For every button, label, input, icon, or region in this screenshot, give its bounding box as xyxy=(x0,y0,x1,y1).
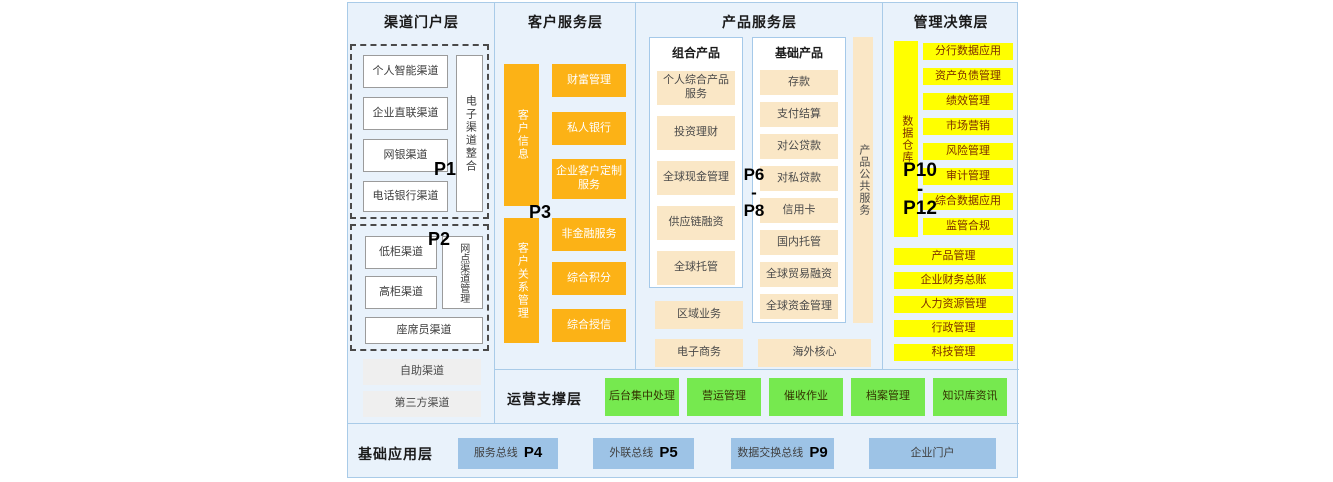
diagram-node: 分行数据应用 xyxy=(923,43,1013,60)
diagram-node: 供应链融资 xyxy=(657,206,735,240)
diagram-node: 催收作业 xyxy=(769,378,843,416)
diagram-node: 后台集中处理 xyxy=(605,378,679,416)
diagram-node: 座席员渠道 xyxy=(365,317,483,344)
diagram-node: 国内托管 xyxy=(760,230,838,255)
channel-layer-column: 渠道门户层 个人智能渠道 企业直联渠道 网银渠道 电话银行渠道 电子渠道整合 P… xyxy=(348,3,495,423)
diagram-node: 信用卡 xyxy=(760,198,838,223)
architecture-diagram: 渠道门户层 个人智能渠道 企业直联渠道 网银渠道 电话银行渠道 电子渠道整合 P… xyxy=(0,0,1333,482)
diagram-node: 存款 xyxy=(760,70,838,95)
base-products-title: 基础产品 xyxy=(753,44,845,61)
customer-layer-title: 客户服务层 xyxy=(495,12,636,32)
operations-layer-row: 运营支撑层 后台集中处理 营运管理 催收作业 档案管理 知识库资讯 xyxy=(495,369,1019,423)
diagram-node: 全球托管 xyxy=(657,251,735,285)
enterprise-portal-node: 企业门户 xyxy=(869,438,996,469)
management-layer-column: 管理决策层 数据仓库 P10 - P12 分行数据应用 资产负债管理 绩效管理 … xyxy=(883,3,1019,369)
diagram-node: 全球贸易融资 xyxy=(760,262,838,287)
management-layer-title: 管理决策层 xyxy=(883,12,1019,32)
dash-text: - xyxy=(896,180,944,199)
diagram-node: 第三方渠道 xyxy=(363,391,481,417)
p6-p8-label: P6 - P8 xyxy=(740,166,768,220)
diagram-node: 行政管理 xyxy=(894,320,1013,337)
p1-label: P1 xyxy=(434,160,456,178)
diagram-node: 企业财务总账 xyxy=(894,272,1013,289)
p2-label: P2 xyxy=(428,230,450,248)
diagram-node: 知识库资讯 xyxy=(933,378,1007,416)
diagram-node: 绩效管理 xyxy=(923,93,1013,110)
diagram-node: 全球现金管理 xyxy=(657,161,735,195)
combo-products-panel: 组合产品 个人综合产品服务 投资理财 全球现金管理 供应链融资 全球托管 xyxy=(649,37,743,288)
diagram-node: 科技管理 xyxy=(894,344,1013,361)
diagram-node: 自助渠道 xyxy=(363,359,481,385)
diagram-node: 电话银行渠道 xyxy=(363,181,448,212)
diagram-node: 全球资金管理 xyxy=(760,294,838,319)
diagram-node: 私人银行 xyxy=(552,112,626,145)
diagram-node: 投资理财 xyxy=(657,116,735,150)
diagram-node: 非金融服务 xyxy=(552,218,626,251)
data-exchange-bus-node: 数据交换总线 P9 xyxy=(731,438,834,469)
bus-label: 外联总线 xyxy=(609,447,653,461)
product-public-services-bar: 产品公共服务 xyxy=(853,37,873,323)
product-layer-column: 产品服务层 组合产品 个人综合产品服务 投资理财 全球现金管理 供应链融资 全球… xyxy=(636,3,883,369)
diagram-node: 市场营销 xyxy=(923,118,1013,135)
diagram-node: 产品管理 xyxy=(894,248,1013,265)
p3-label: P3 xyxy=(529,203,551,221)
diagram-node: 企业直联渠道 xyxy=(363,97,448,130)
p4-label: P4 xyxy=(524,444,542,463)
diagram-node: 个人智能渠道 xyxy=(363,55,448,88)
combo-products-title: 组合产品 xyxy=(650,44,742,61)
product-layer-title: 产品服务层 xyxy=(636,12,883,32)
operations-layer-title: 运营支撑层 xyxy=(507,389,587,409)
bus-label: 服务总线 xyxy=(474,447,518,461)
diagram-node: 支付结算 xyxy=(760,102,838,127)
diagram-node: 低柜渠道 xyxy=(365,236,437,269)
customer-info-bar: 客户信息 xyxy=(504,64,539,206)
diagram-node: 企业客户定制服务 xyxy=(552,159,626,199)
diagram-node: 人力资源管理 xyxy=(894,296,1013,313)
diagram-node: 资产负债管理 xyxy=(923,68,1013,85)
p8-text: P8 xyxy=(740,202,768,220)
diagram-node: 个人综合产品服务 xyxy=(657,71,735,105)
bus-label: 数据交换总线 xyxy=(737,447,803,461)
diagram-node: 区域业务 xyxy=(655,301,743,329)
diagram-node: 监管合规 xyxy=(923,218,1013,235)
service-bus-node: 服务总线 P4 xyxy=(458,438,558,469)
diagram-node: 综合积分 xyxy=(552,262,626,295)
foundation-layer-row: 基础应用层 服务总线 P4 外联总线 P5 数据交换总线 P9 企业门户 xyxy=(348,423,1019,477)
diagram-node: 对公贷款 xyxy=(760,134,838,159)
diagram-node: 电子商务 xyxy=(655,339,743,367)
diagram-node: 海外核心 xyxy=(758,339,871,367)
p10-text: P10 xyxy=(896,161,944,180)
diagram-node: 综合授信 xyxy=(552,309,626,342)
foundation-layer-title: 基础应用层 xyxy=(358,444,438,464)
external-bus-node: 外联总线 P5 xyxy=(593,438,694,469)
diagram-node: 档案管理 xyxy=(851,378,925,416)
diagram-node: 对私贷款 xyxy=(760,166,838,191)
p9-label: P9 xyxy=(809,444,827,463)
channel-group1-dashed-box: 个人智能渠道 企业直联渠道 网银渠道 电话银行渠道 电子渠道整合 P1 xyxy=(350,44,489,219)
dash-text: - xyxy=(740,184,768,202)
customer-crm-bar: 客户关系管理 xyxy=(504,218,539,343)
channel-layer-title: 渠道门户层 xyxy=(348,12,495,32)
diagram-node: 营运管理 xyxy=(687,378,761,416)
channel-group2-dashed-box: 低柜渠道 高柜渠道 网点渠道管理 座席员渠道 P2 xyxy=(350,224,489,351)
customer-layer-column: 客户服务层 客户信息 P3 客户关系管理 财富管理 私人银行 企业客户定制服务 … xyxy=(495,3,636,369)
diagram-frame: 渠道门户层 个人智能渠道 企业直联渠道 网银渠道 电话银行渠道 电子渠道整合 P… xyxy=(347,2,1018,478)
diagram-node: 财富管理 xyxy=(552,64,626,97)
diagram-node: 高柜渠道 xyxy=(365,276,437,309)
channel-group1-side-bar: 电子渠道整合 xyxy=(456,55,483,212)
p12-text: P12 xyxy=(896,199,944,218)
bus-label: 企业门户 xyxy=(911,447,955,461)
p6-text: P6 xyxy=(740,166,768,184)
p10-p12-label: P10 - P12 xyxy=(896,161,944,218)
diagram-node: 风险管理 xyxy=(923,143,1013,160)
p5-label: P5 xyxy=(659,444,677,463)
